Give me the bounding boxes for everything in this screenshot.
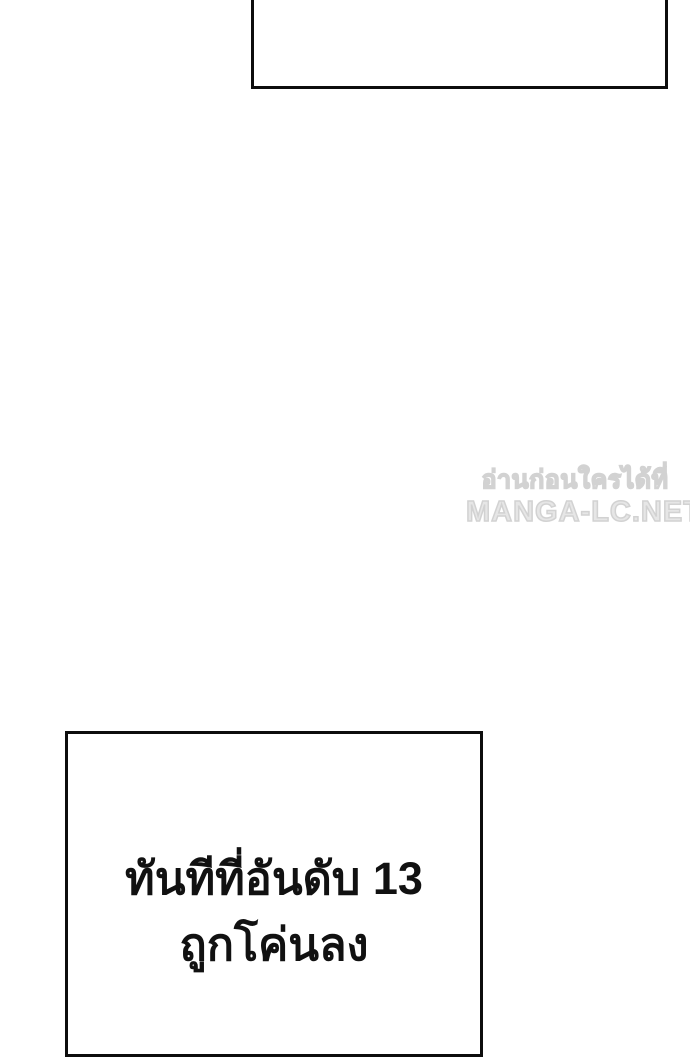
caption-line-2: ถูกโค่นลง bbox=[68, 912, 480, 978]
watermark-site-name: MANGA-LC.NET bbox=[466, 497, 684, 528]
watermark-thai-text: อ่านก่อนใครได้ที่ bbox=[466, 464, 684, 497]
caption-text: ทันทีที่อันดับ 13 ถูกโค่นลง bbox=[68, 846, 480, 978]
bottom-caption-box: ทันทีที่อันดับ 13 ถูกโค่นลง bbox=[65, 731, 483, 1057]
top-speech-box bbox=[251, 0, 668, 89]
caption-line-1: ทันทีที่อันดับ 13 bbox=[68, 846, 480, 912]
site-watermark: อ่านก่อนใครได้ที่ MANGA-LC.NET bbox=[466, 464, 684, 528]
